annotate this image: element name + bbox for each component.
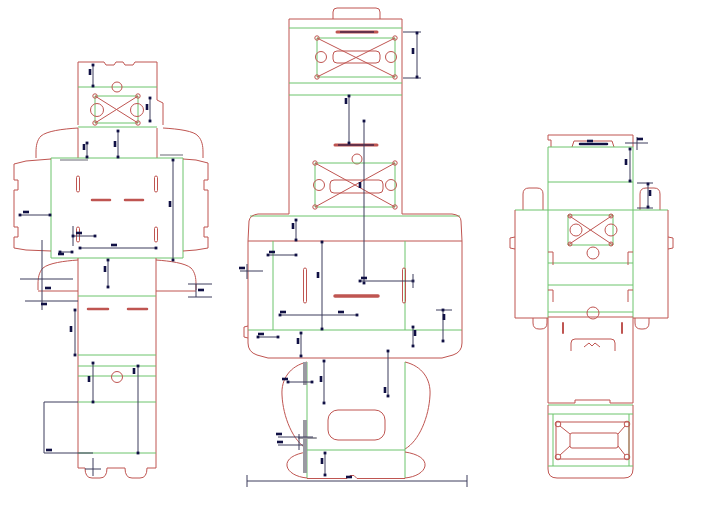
dimension: [92, 64, 95, 88]
dieline-drawing-canvas: [0, 0, 720, 514]
dim-text: [83, 144, 86, 150]
dim-text: [111, 244, 117, 247]
dim-text: [198, 289, 204, 292]
dim-tick: [387, 395, 390, 398]
dim-text: [412, 48, 415, 54]
dim-tick: [647, 206, 650, 209]
dimension: [267, 254, 298, 257]
dim-text: [320, 376, 323, 382]
dim-tick: [412, 345, 415, 348]
dim-tick: [442, 309, 445, 312]
dimension: [412, 326, 415, 348]
dim-tick: [416, 76, 419, 79]
dim-tick: [647, 183, 650, 186]
right-wing-panel: [183, 159, 208, 251]
dimension: [79, 247, 158, 250]
dim-text: [269, 251, 275, 254]
dim-text: [276, 433, 282, 436]
dim-tick: [74, 309, 77, 312]
dimension: [323, 360, 326, 405]
hang-tab-zigzag: [584, 343, 600, 347]
dim-text: [361, 277, 367, 280]
left-carton-dieline: [14, 62, 212, 478]
dimension: [19, 214, 52, 217]
dim-text: [45, 287, 51, 290]
dim-tick: [107, 286, 110, 289]
dim-tick: [324, 474, 327, 477]
dim-tick: [71, 251, 74, 254]
dimension: [117, 130, 120, 159]
top-tab: [333, 8, 380, 19]
dim-tick: [19, 214, 22, 217]
dim-text: [89, 69, 92, 75]
dim-tick: [295, 219, 298, 222]
dim-tick: [300, 355, 303, 358]
dim-text: [114, 141, 117, 147]
drawing-area: [0, 0, 720, 514]
dim-tick: [149, 97, 152, 100]
dust-flap: [36, 128, 78, 158]
dust-flap: [38, 260, 78, 290]
dim-text: [345, 98, 348, 104]
dim-tick: [107, 259, 110, 262]
dimension: [279, 314, 359, 317]
dim-tick: [295, 254, 298, 257]
dim-tick: [149, 120, 152, 123]
dim-tick: [363, 282, 366, 285]
dim-text: [277, 441, 283, 444]
lock-slot: [77, 227, 80, 242]
handle-slot: [330, 180, 383, 193]
dim-tick: [74, 354, 77, 357]
dim-tick: [348, 95, 351, 98]
dimension: [287, 381, 314, 384]
edge-notch: [244, 326, 248, 338]
dim-text: [280, 311, 286, 314]
dim-tick: [412, 326, 415, 329]
dim-text: [146, 104, 149, 110]
dim-text: [76, 232, 82, 235]
dim-text: [46, 449, 52, 452]
lock-slot: [403, 268, 406, 303]
dim-tick: [72, 235, 75, 238]
dim-tick: [117, 130, 120, 133]
dim-text: [169, 201, 172, 207]
highlight-bar: [303, 420, 307, 473]
dimension: [442, 309, 445, 343]
lock-slot: [155, 176, 158, 192]
dim-tick: [257, 336, 260, 339]
dim-text: [258, 333, 264, 336]
side-tab: [523, 188, 543, 210]
dim-tick: [300, 332, 303, 335]
handle-hole: [131, 104, 144, 117]
dust-flap: [163, 128, 203, 158]
handle-slot: [570, 433, 618, 448]
right-carton-dieline: [510, 135, 673, 478]
dim-text: [649, 190, 652, 196]
dim-text: [321, 458, 324, 464]
dimension: [137, 365, 140, 455]
dim-text: [359, 182, 362, 188]
dim-tick: [324, 452, 327, 455]
dim-tick: [629, 180, 632, 183]
dim-text: [587, 140, 593, 143]
path-shape: [442, 330, 462, 358]
dim-tick: [323, 402, 326, 405]
dim-tick: [117, 156, 120, 159]
lock-slot: [304, 268, 307, 303]
polyline-shape: [548, 290, 553, 302]
dimension: [416, 32, 419, 79]
dim-text: [414, 330, 417, 336]
dim-tick: [321, 241, 324, 244]
dimension: [72, 235, 97, 238]
dim-text: [58, 253, 64, 256]
dim-text: [282, 378, 288, 381]
dim-tick: [49, 214, 52, 217]
dimension: [348, 95, 351, 145]
path-shape: [405, 452, 425, 478]
small-tab: [635, 318, 649, 329]
dust-flap: [156, 260, 196, 290]
left-wing-panel: [14, 159, 51, 251]
dim-tick: [321, 328, 324, 331]
handle-hole: [570, 224, 582, 236]
dim-tick: [629, 148, 632, 151]
dim-tick: [387, 350, 390, 353]
dim-text: [41, 303, 47, 306]
shoulder-flap: [402, 214, 462, 241]
dim-text: [239, 267, 245, 270]
edge-notch: [510, 237, 515, 249]
dimension: [321, 241, 324, 331]
dim-text: [23, 211, 29, 214]
small-tab: [533, 318, 547, 329]
dim-tick: [172, 159, 175, 162]
dimension: [172, 159, 175, 262]
dim-text: [443, 314, 446, 320]
dim-tick: [279, 314, 282, 317]
dimension: [92, 362, 95, 404]
line-shape: [618, 446, 625, 455]
dim-tick: [172, 259, 175, 262]
dimension: [295, 219, 298, 242]
dimension: [149, 97, 152, 123]
dimension: [300, 332, 303, 358]
dimension: [74, 309, 77, 357]
dim-text: [133, 368, 136, 374]
dim-text: [88, 376, 91, 382]
dim-tick: [92, 64, 95, 67]
dim-tick: [348, 142, 351, 145]
dim-text: [297, 338, 300, 344]
finger-hole: [112, 372, 123, 383]
line-shape: [618, 426, 625, 434]
line-shape: [560, 446, 570, 455]
dim-tick: [311, 381, 314, 384]
dim-tick: [94, 235, 97, 238]
dimension: [629, 148, 632, 183]
dim-text: [317, 272, 320, 278]
dim-tick: [155, 247, 158, 250]
dim-text: [292, 223, 295, 229]
bottom-panel-outline: [548, 405, 633, 478]
window-cutout: [328, 410, 385, 440]
dim-tick: [287, 381, 290, 384]
dimension: [86, 142, 89, 159]
dim-text: [637, 138, 643, 141]
dim-tick: [92, 85, 95, 88]
dim-tick: [137, 452, 140, 455]
bottom-edge: [307, 476, 405, 479]
dim-tick: [79, 247, 82, 250]
finger-hole: [587, 247, 599, 259]
dim-tick: [137, 365, 140, 368]
dim-tick: [323, 360, 326, 363]
dim-text: [338, 311, 344, 314]
auto-bottom-flap: [405, 362, 430, 449]
dim-text: [70, 326, 73, 332]
dimension: [257, 336, 280, 339]
dim-tick: [295, 239, 298, 242]
dim-tick: [363, 120, 366, 123]
lock-slot: [77, 176, 80, 192]
dim-text: [104, 266, 107, 272]
dimension: [387, 350, 390, 398]
dim-text: [346, 476, 352, 479]
middle-carton-dieline: [239, 8, 467, 487]
edge-step: [548, 135, 551, 147]
dim-tick: [92, 362, 95, 365]
polyline-shape: [628, 290, 633, 302]
line-shape: [560, 426, 570, 434]
dimension: [107, 259, 110, 289]
dimension: [324, 452, 327, 477]
dim-tick: [416, 32, 419, 35]
dim-tick: [356, 314, 359, 317]
handle-hole: [91, 104, 104, 117]
shoulder-flap: [248, 214, 289, 241]
dim-tick: [267, 254, 270, 257]
dim-tick: [86, 156, 89, 159]
notched-edge: [548, 400, 633, 403]
dim-tick: [86, 142, 89, 145]
edge-notch: [668, 237, 673, 249]
dim-tick: [442, 340, 445, 343]
lock-slot: [155, 227, 158, 242]
dim-tick: [359, 280, 362, 283]
dim-tick: [92, 401, 95, 404]
dim-text: [384, 387, 387, 393]
dimension: [359, 280, 415, 283]
handle-hole: [605, 224, 617, 236]
dim-tick: [277, 336, 280, 339]
dim-text: [625, 159, 628, 165]
